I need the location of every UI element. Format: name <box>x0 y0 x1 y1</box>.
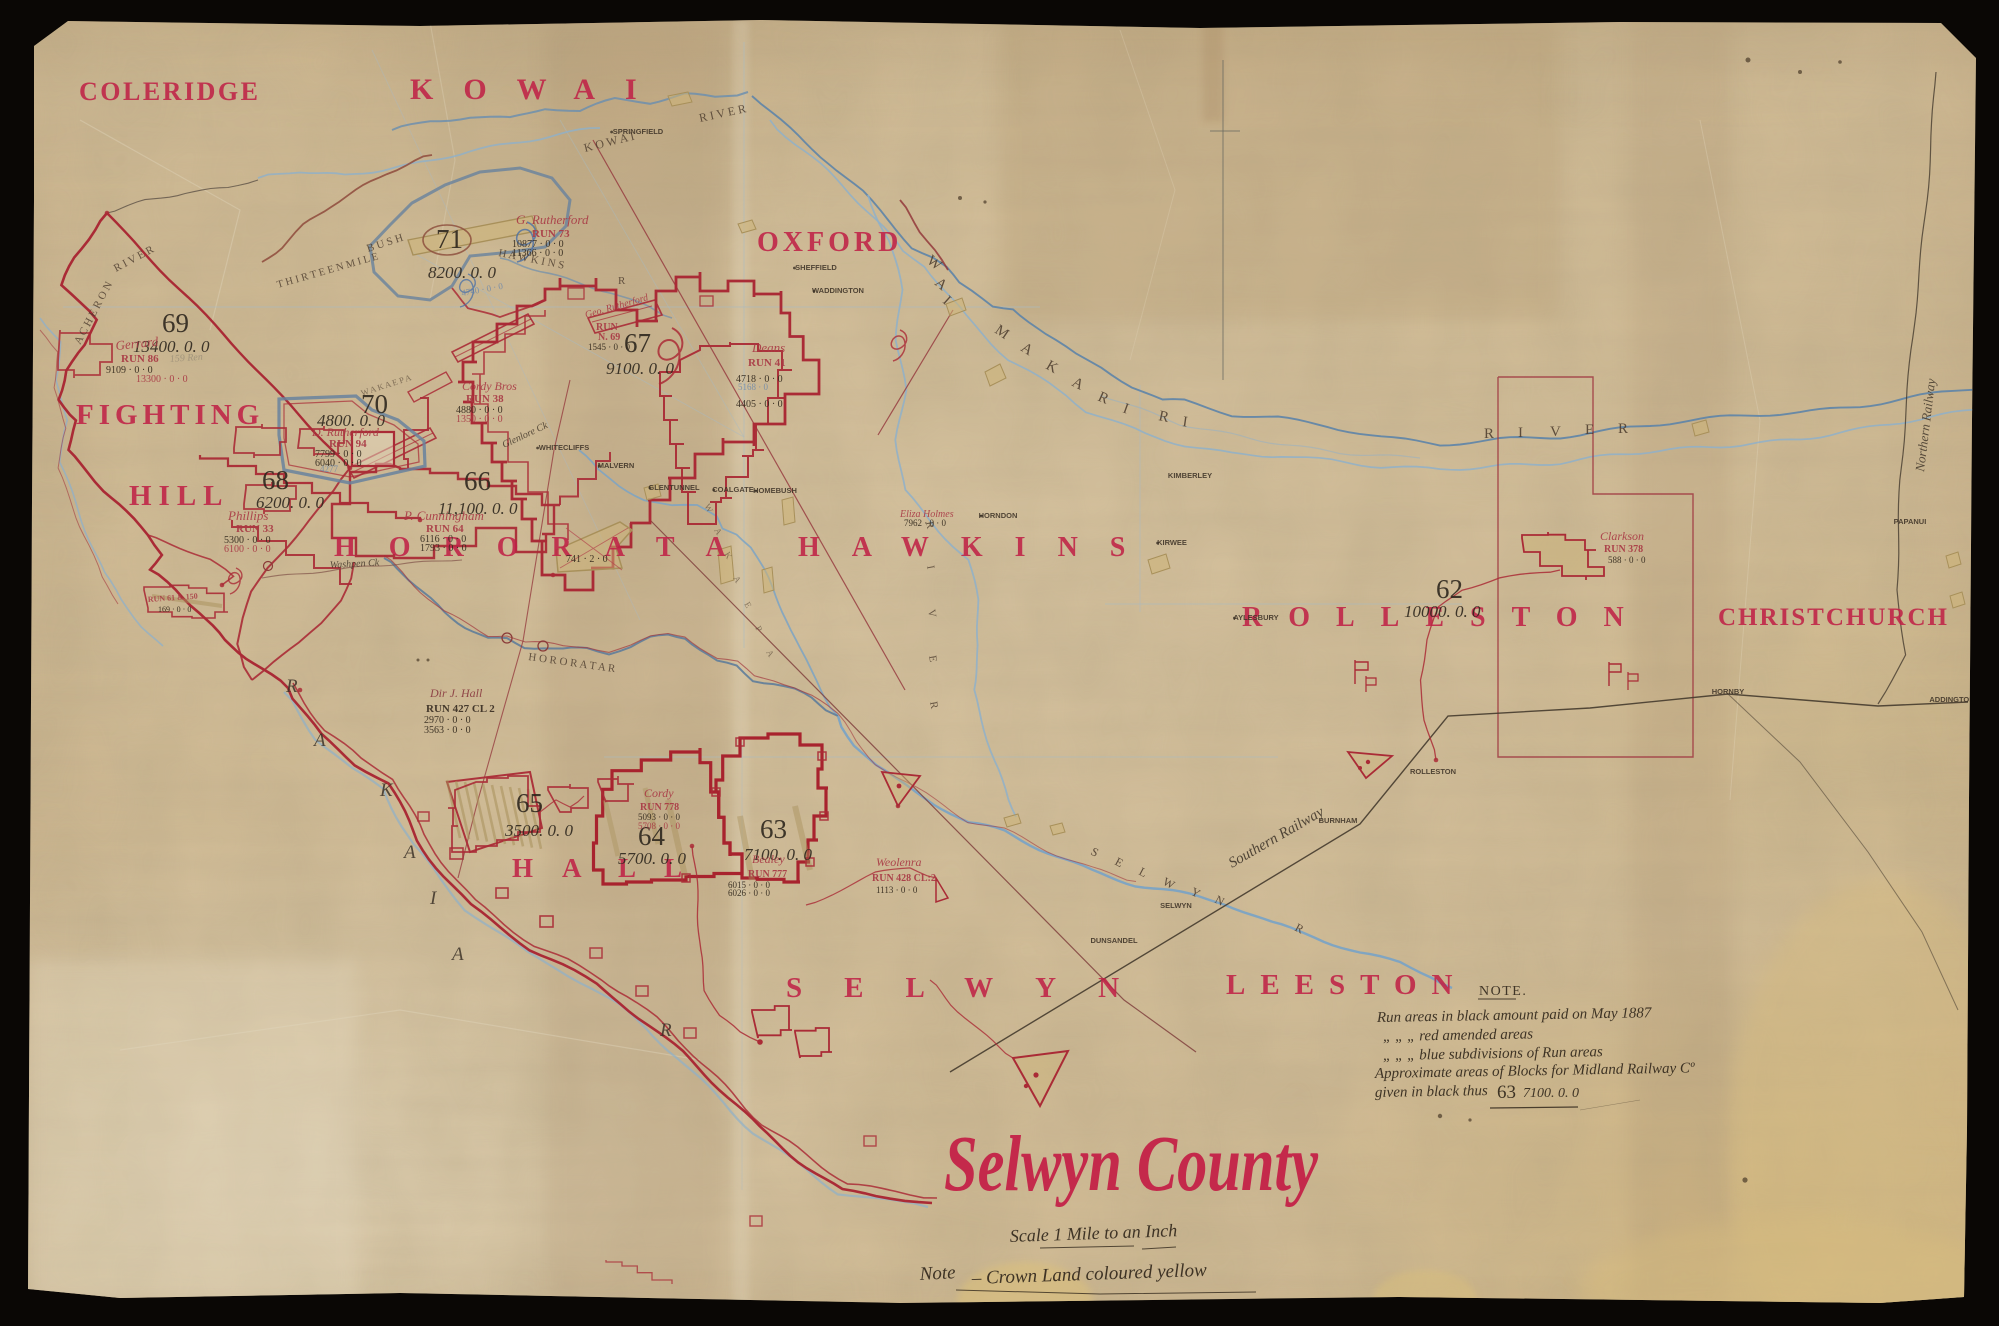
svg-text:RUN 378: RUN 378 <box>1604 544 1643 555</box>
svg-text:13300 · 0 · 0: 13300 · 0 · 0 <box>136 374 188 385</box>
svg-text:A: A <box>1069 374 1086 393</box>
svg-text:Bealey: Bealey <box>752 852 785 866</box>
svg-text:Southern Railway: Southern Railway <box>1226 804 1327 872</box>
svg-text:ROLLESTON: ROLLESTON <box>1410 767 1456 776</box>
svg-text:Deans: Deans <box>751 340 785 355</box>
svg-text:R: R <box>1157 408 1170 426</box>
svg-text:R: R <box>285 676 298 697</box>
svg-text:SELWYN: SELWYN <box>1160 901 1192 910</box>
svg-text:7100. 0. 0: 7100. 0. 0 <box>1523 1086 1579 1101</box>
svg-text:PAPANUI: PAPANUI <box>1894 517 1927 526</box>
svg-text:R I V E R: R I V E R <box>698 101 747 125</box>
svg-text:11366 · 0 · 0: 11366 · 0 · 0 <box>512 248 563 259</box>
svg-text:RUN 428 CL:2: RUN 428 CL:2 <box>872 873 936 884</box>
svg-text:Selwyn County: Selwyn County <box>944 1121 1319 1208</box>
svg-text:69: 69 <box>162 308 189 338</box>
svg-text:RUN 86: RUN 86 <box>121 353 159 365</box>
svg-text:R: R <box>1095 389 1111 408</box>
svg-text:R: R <box>927 700 940 710</box>
svg-text:FIGHTING: FIGHTING <box>76 399 264 431</box>
svg-text:9100. 0. 0: 9100. 0. 0 <box>606 359 675 378</box>
svg-text:SHEFFIELD: SHEFFIELD <box>795 263 837 272</box>
svg-text:given in black thus: given in black thus <box>1375 1083 1488 1101</box>
svg-text:4277: 4277 <box>320 464 339 474</box>
svg-text:R: R <box>618 275 626 287</box>
svg-text:Clarkson: Clarkson <box>1600 529 1644 543</box>
svg-text:68: 68 <box>262 465 289 495</box>
svg-text:A: A <box>312 730 326 751</box>
svg-text:E: E <box>1585 422 1594 438</box>
svg-text:D. Rutherford: D. Rutherford <box>311 425 380 439</box>
svg-text:K: K <box>379 780 394 801</box>
svg-text:WADDINGTON: WADDINGTON <box>812 286 864 295</box>
svg-text:Cordy: Cordy <box>644 786 674 800</box>
svg-text:A: A <box>931 275 950 294</box>
svg-text:LEESTON: LEESTON <box>1226 969 1467 1001</box>
svg-text:P. Cunningham: P. Cunningham <box>403 508 484 523</box>
svg-text:RUN 38: RUN 38 <box>466 393 504 405</box>
svg-text:66: 66 <box>464 466 491 496</box>
svg-text:RUN 41: RUN 41 <box>748 357 786 369</box>
svg-text:R: R <box>659 1020 672 1041</box>
svg-text:V: V <box>925 608 938 618</box>
svg-text:GLENTUNNEL: GLENTUNNEL <box>648 483 700 492</box>
svg-text:Y: Y <box>1189 884 1204 901</box>
svg-text:I: I <box>429 888 438 909</box>
svg-text:3500. 0. 0: 3500. 0. 0 <box>504 821 574 840</box>
svg-text:– Crown Land coloured yellow: – Crown Land coloured yellow <box>970 1260 1207 1289</box>
svg-text:8200. 0. 0: 8200. 0. 0 <box>428 263 497 282</box>
svg-text:63: 63 <box>760 814 787 844</box>
svg-text:Washpen Ck: Washpen Ck <box>330 557 380 571</box>
svg-text:P: P <box>753 624 764 633</box>
svg-text:HILL: HILL <box>129 480 230 512</box>
svg-text:KOWAI: KOWAI <box>410 73 667 106</box>
svg-text:5168 · 0: 5168 · 0 <box>738 382 768 392</box>
svg-text:I: I <box>1181 414 1188 431</box>
svg-text:A: A <box>450 944 464 965</box>
svg-text:63: 63 <box>1497 1082 1516 1103</box>
svg-text:WHITECLIFFS: WHITECLIFFS <box>539 443 589 452</box>
svg-text:RUN 427 CL 2: RUN 427 CL 2 <box>426 703 495 715</box>
svg-text:„ „ „ red amende: „ „ „ red amended areas <box>1383 1026 1534 1045</box>
svg-text:Note: Note <box>918 1262 956 1285</box>
svg-text:R: R <box>1484 426 1494 442</box>
svg-text:S: S <box>1089 844 1101 860</box>
svg-text:KIRWEE: KIRWEE <box>1157 538 1187 547</box>
svg-text:A: A <box>764 648 776 659</box>
svg-text:7962 · 0 · 0: 7962 · 0 · 0 <box>904 518 946 528</box>
svg-text:10000. 0. 0: 10000. 0. 0 <box>1404 602 1481 621</box>
svg-text:ADDINGTON: ADDINGTON <box>1929 695 1974 704</box>
svg-text:159 Ren: 159 Ren <box>169 352 203 365</box>
svg-text:1793 · 0 · 0: 1793 · 0 · 0 <box>420 543 467 554</box>
svg-text:H: H <box>512 853 533 883</box>
svg-text:Scale 1 Mile to an Inch: Scale 1 Mile to an Inch <box>1009 1220 1177 1246</box>
svg-text:Weolenra: Weolenra <box>876 855 922 869</box>
svg-text:5708 · 0 · 0: 5708 · 0 · 0 <box>638 821 680 831</box>
svg-text:OXFORD: OXFORD <box>757 227 902 258</box>
svg-text:Dir J. Hall: Dir J. Hall <box>429 686 483 700</box>
svg-text:A: A <box>1018 340 1036 359</box>
svg-text:W: W <box>702 502 715 515</box>
svg-text:E: E <box>926 654 939 663</box>
svg-text:CHRISTCHURCH: CHRISTCHURCH <box>1718 604 1949 631</box>
svg-text:1350 · 0 · 0: 1350 · 0 · 0 <box>456 414 503 425</box>
svg-text:G. Rutherford: G. Rutherford <box>516 212 589 227</box>
svg-text:4740 · 0 · 0: 4740 · 0 · 0 <box>461 281 505 298</box>
svg-text:HORNBY: HORNBY <box>1712 687 1745 696</box>
svg-text:V: V <box>1550 424 1561 440</box>
svg-text:I: I <box>924 564 937 570</box>
svg-text:Northern Railway: Northern Railway <box>1912 377 1938 473</box>
svg-text:HORNDON: HORNDON <box>979 511 1018 520</box>
svg-text:SELWYN: SELWYN <box>786 972 1161 1004</box>
svg-text:KIMBERLEY: KIMBERLEY <box>1168 471 1212 480</box>
svg-text:SPRINGFIELD: SPRINGFIELD <box>613 127 664 136</box>
svg-text:NOTE.: NOTE. <box>1479 984 1527 999</box>
svg-text:H O R O R A T A R: H O R O R A T A R <box>528 651 617 675</box>
svg-text:„: „ <box>1094 1293 1099 1307</box>
svg-text:65: 65 <box>516 788 543 818</box>
svg-text:A: A <box>402 842 416 863</box>
svg-text:COLERIDGE: COLERIDGE <box>79 77 260 106</box>
svg-text:MALVERN: MALVERN <box>598 461 635 470</box>
svg-text:A C H E R O N: A C H E R O N <box>72 280 115 347</box>
svg-text:6100 · 0 · 0: 6100 · 0 · 0 <box>224 544 271 555</box>
svg-text:5700. 0. 0: 5700. 0. 0 <box>618 849 687 868</box>
svg-text:741 · 2 · 0: 741 · 2 · 0 <box>566 554 608 565</box>
svg-text:AYLESBURY: AYLESBURY <box>1233 613 1278 622</box>
svg-text:Approximate areas of Blocks fo: Approximate areas of Blocks for Midland … <box>1374 1060 1695 1082</box>
svg-text:HOMEBUSH: HOMEBUSH <box>753 486 797 495</box>
svg-text:HORORATA: HORORATA <box>334 532 759 563</box>
svg-text:RUN 33: RUN 33 <box>236 523 274 535</box>
svg-text:3563 · 0 · 0: 3563 · 0 · 0 <box>424 725 471 736</box>
svg-text:E: E <box>1113 854 1126 870</box>
svg-text:6026 · 0 · 0: 6026 · 0 · 0 <box>728 888 770 898</box>
svg-text:T H I R T E E N M I L E: T H I R T E E N M I L E <box>276 251 380 290</box>
svg-text:L: L <box>1137 864 1150 880</box>
svg-text:1545 · 0 · 0: 1545 · 0 · 0 <box>588 342 630 352</box>
svg-text:1113 · 0 · 0: 1113 · 0 · 0 <box>876 885 918 895</box>
svg-text:COALGATE: COALGATE <box>712 485 754 494</box>
svg-text:„ „ „ blue subdi: „ „ „ blue subdivisions of Run areas <box>1383 1044 1603 1064</box>
svg-text:Phillips: Phillips <box>227 508 268 523</box>
svg-text:DUNSANDEL: DUNSANDEL <box>1090 936 1138 945</box>
svg-text:M: M <box>992 322 1012 343</box>
svg-text:62: 62 <box>1436 574 1463 604</box>
svg-text:Run areas in black amount paid: Run areas in black amount paid on May 18… <box>1376 1005 1653 1026</box>
svg-text:71: 71 <box>436 224 463 254</box>
svg-text:Cordy Bros: Cordy Bros <box>462 379 517 393</box>
svg-text:K: K <box>1043 358 1061 377</box>
svg-text:588 · 0 · 0: 588 · 0 · 0 <box>1608 555 1646 565</box>
svg-text:169 · 0 · 0: 169 · 0 · 0 <box>158 605 191 614</box>
svg-text:B U S H: B U S H <box>365 232 405 255</box>
svg-text:HAWKINS: HAWKINS <box>798 532 1157 563</box>
svg-text:RUN 777: RUN 777 <box>748 869 787 880</box>
svg-text:A: A <box>562 853 582 883</box>
svg-text:4405 · 0 · 0: 4405 · 0 · 0 <box>736 399 783 410</box>
svg-text:R: R <box>1618 421 1628 437</box>
svg-text:I: I <box>1518 425 1523 441</box>
